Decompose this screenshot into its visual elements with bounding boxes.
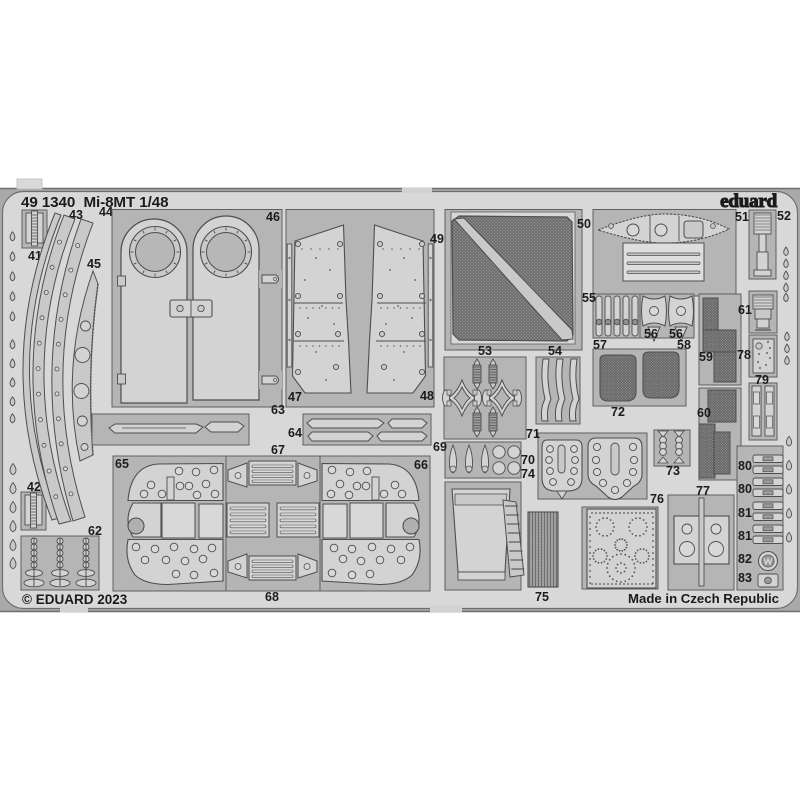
svg-text:71: 71 — [526, 427, 540, 441]
svg-text:51: 51 — [735, 210, 749, 224]
svg-text:61: 61 — [738, 303, 752, 317]
svg-text:62: 62 — [88, 524, 102, 538]
svg-text:73: 73 — [666, 464, 680, 478]
svg-text:Made in Czech Republic: Made in Czech Republic — [628, 591, 779, 606]
svg-text:52: 52 — [777, 209, 791, 223]
svg-text:64: 64 — [288, 426, 302, 440]
svg-text:67: 67 — [271, 443, 285, 457]
svg-text:45: 45 — [87, 257, 101, 271]
svg-text:81: 81 — [738, 529, 752, 543]
svg-text:47: 47 — [288, 390, 302, 404]
svg-text:80: 80 — [738, 482, 752, 496]
svg-text:72: 72 — [611, 405, 625, 419]
svg-text:53: 53 — [478, 344, 492, 358]
svg-text:76: 76 — [650, 492, 664, 506]
svg-text:65: 65 — [115, 457, 129, 471]
svg-text:46: 46 — [266, 210, 280, 224]
svg-text:80: 80 — [738, 459, 752, 473]
svg-text:75: 75 — [535, 590, 549, 604]
svg-text:60: 60 — [697, 406, 711, 420]
svg-text:49 1340 Mi-8MT 1/48: 49 1340 Mi-8MT 1/48 — [21, 194, 168, 211]
svg-text:44: 44 — [99, 205, 113, 219]
svg-text:77: 77 — [696, 484, 710, 498]
svg-text:83: 83 — [738, 571, 752, 585]
svg-text:59: 59 — [699, 350, 713, 364]
svg-text:74: 74 — [521, 467, 535, 481]
svg-text:81: 81 — [738, 506, 752, 520]
svg-text:78: 78 — [737, 348, 751, 362]
svg-text:68: 68 — [265, 590, 279, 604]
svg-text:© EDUARD 2023: © EDUARD 2023 — [22, 592, 128, 607]
svg-text:69: 69 — [433, 440, 447, 454]
svg-text:49: 49 — [430, 232, 444, 246]
svg-text:56: 56 — [644, 327, 658, 341]
svg-text:79: 79 — [755, 373, 769, 387]
svg-text:70: 70 — [521, 453, 535, 467]
svg-text:54: 54 — [548, 344, 562, 358]
svg-text:63: 63 — [271, 403, 285, 417]
svg-text:48: 48 — [420, 389, 434, 403]
svg-text:eduard: eduard — [720, 191, 778, 212]
svg-text:55: 55 — [582, 291, 596, 305]
svg-text:66: 66 — [414, 458, 428, 472]
svg-text:82: 82 — [738, 552, 752, 566]
svg-text:50: 50 — [577, 217, 591, 231]
